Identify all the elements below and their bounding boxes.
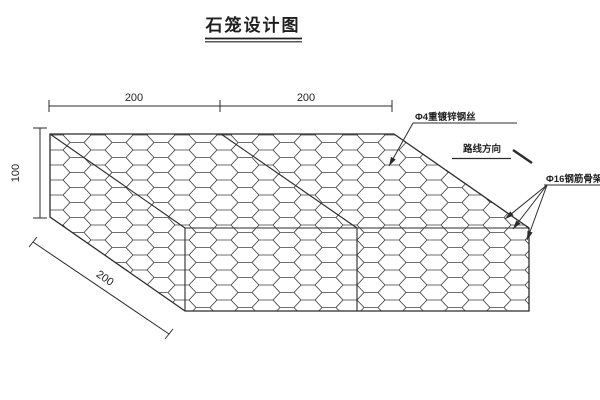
drawing-title: 石笼设计图 [205, 15, 301, 35]
dimension-top [49, 100, 392, 112]
dim-tick [165, 329, 173, 339]
mesh-wire-label: Φ4重镀锌钢丝 [415, 111, 476, 123]
route-direction-arrow [513, 150, 532, 163]
route-direction-label: 路线方向 [463, 143, 501, 155]
gabion-box [50, 134, 529, 311]
hex-mesh-fill [50, 134, 529, 311]
gabion-design-drawing: 石笼设计图 200 200 [0, 0, 600, 400]
drawing-canvas: 石笼设计图 200 200 [0, 0, 600, 400]
dim-label-top-left: 200 [125, 92, 143, 104]
frame-leader-line [513, 185, 547, 229]
dim-label-height: 100 [10, 164, 22, 182]
dim-label-top-right: 200 [297, 92, 315, 104]
dimension-height [33, 128, 47, 218]
frame-label: Φ16钢筋骨架 [546, 173, 600, 185]
dim-tick [29, 237, 37, 247]
annotation-route-direction: 路线方向 [452, 143, 532, 163]
title-block: 石笼设计图 [205, 15, 303, 42]
